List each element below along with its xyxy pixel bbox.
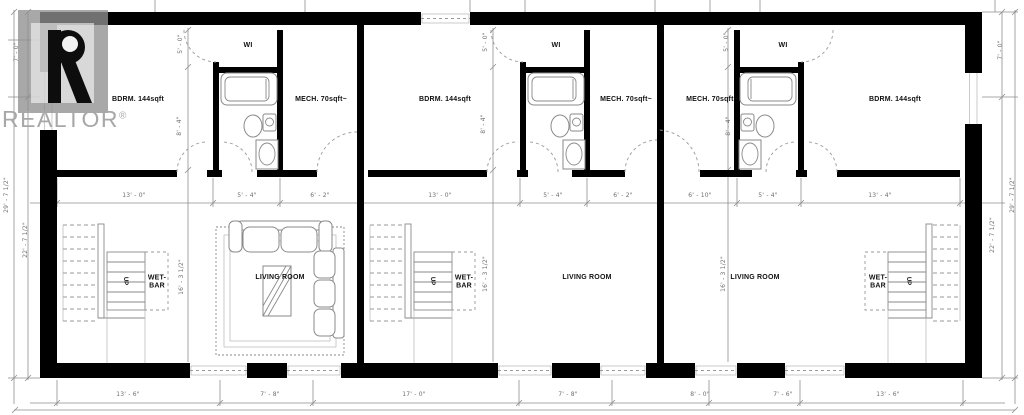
living-room-3-label: LIVING ROOM (730, 274, 779, 282)
living-room-2-label: LIVING ROOM (562, 274, 611, 282)
dimension-label: 8' - 0" (690, 392, 709, 398)
dimension-label: 8' - 4" (481, 114, 487, 133)
dimension-label: 7' - 8" (558, 392, 577, 398)
walkin-closet-2-label: WI (552, 42, 561, 50)
dimension-lines (8, 0, 1018, 413)
dimension-label: 6' - 2" (613, 193, 632, 199)
staircase-unit-2 (370, 224, 475, 363)
dimension-label: 7' - 0" (998, 40, 1004, 59)
dimension-label: 7' - 6" (773, 392, 792, 398)
dimension-label: 22' - 7 1/2" (990, 217, 996, 253)
windows (40, 12, 982, 378)
registered-mark: ® (119, 110, 126, 121)
dimension-label: 7' - 0" (14, 42, 20, 61)
dimension-label: 5' - 4" (758, 193, 777, 199)
dimension-label: 5' - 0" (178, 34, 184, 53)
living-room-furniture (216, 221, 344, 355)
walkin-closet-1-label: WI (244, 42, 253, 50)
living-room-1-label: LIVING ROOM (255, 274, 304, 282)
dimension-label: 17' - 0" (402, 392, 425, 398)
dimension-label: 13' - 6" (876, 392, 899, 398)
mech-room-3-label: MECH. 70sqft~ (686, 96, 738, 104)
stairs-up-1-label: UP (122, 277, 128, 285)
dimension-label: 13' - 0" (122, 193, 145, 199)
wet-bar-2-label: WET- BAR (455, 275, 473, 292)
toilet-icon (551, 114, 583, 137)
vanity-sink-icon (256, 140, 278, 169)
dimension-label: 5' - 0" (483, 32, 489, 51)
dimension-label: 13' - 0" (428, 193, 451, 199)
bathtub-icon (528, 73, 584, 105)
floor-plan-drawing (0, 0, 1024, 415)
bathtub-icon (221, 73, 277, 105)
dimension-label: 13' - 4" (868, 193, 891, 199)
bedroom-1-label: BDRM. 144sqft (112, 96, 164, 104)
bedroom-3-label: BDRM. 144sqft (869, 96, 921, 104)
dimension-label: 6' - 2" (310, 193, 329, 199)
dimension-label: 29' - 7 1/2" (4, 177, 10, 213)
bathroom-fixtures (221, 73, 796, 169)
dimension-label: 5' - 4" (543, 193, 562, 199)
toilet-icon (741, 114, 774, 137)
dimension-label: 5' - 0" (724, 32, 730, 51)
floor-plan: REALTOR® BDRM. 144sqftBDRM. 144sqftBDRM.… (0, 0, 1024, 415)
dimension-label: 5' - 4" (237, 193, 256, 199)
dimension-label: 8' - 4" (177, 116, 183, 135)
dimension-label: 6' - 10" (688, 193, 711, 199)
staircase-unit-3 (865, 224, 960, 363)
mech-room-2-label: MECH. 70sqft~ (600, 96, 652, 104)
bedroom-2-label: BDRM. 144sqft (419, 96, 471, 104)
wet-bar-1-label: WET- BAR (148, 275, 166, 292)
realtor-watermark-text: REALTOR® (2, 106, 126, 133)
dimension-label: 16' - 3 1/2" (483, 256, 489, 292)
sofa (229, 221, 332, 252)
staircase-unit-1 (63, 224, 168, 363)
realtor-logo (18, 10, 108, 113)
walkin-closet-3-label: WI (779, 42, 788, 50)
dimension-label: 22' - 7 1/2" (23, 222, 29, 258)
bathtub-icon (740, 73, 796, 105)
realtor-r-counter (62, 36, 78, 52)
vanity-sink-icon (739, 140, 761, 169)
stairs-up-3-label: UP (905, 277, 911, 285)
wet-bar-3-label: WET- BAR (869, 275, 887, 292)
dimension-label: 8' - 4" (726, 116, 732, 135)
exterior-walls (40, 12, 982, 378)
staircases (63, 224, 960, 363)
sectional-sofa (314, 248, 344, 338)
dimension-label: 16' - 3 1/2" (721, 256, 727, 292)
stairs-up-2-label: UP (429, 277, 435, 285)
mech-room-1-label: MECH. 70sqft~ (295, 96, 347, 104)
dimension-label: 16' - 3 1/2" (179, 259, 185, 295)
dimension-label: 13' - 6" (116, 392, 139, 398)
dimension-label: 29' - 7 1/2" (1010, 177, 1016, 213)
toilet-icon (244, 114, 276, 137)
dimension-label: 7' - 8" (260, 392, 279, 398)
vanity-sink-icon (563, 140, 585, 169)
